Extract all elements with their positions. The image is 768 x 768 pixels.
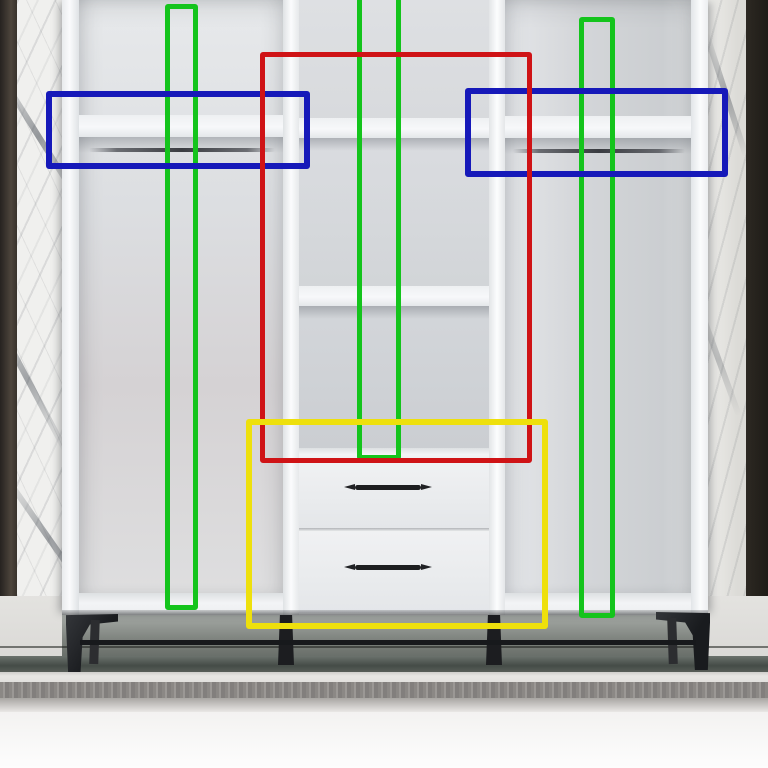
top-drawer-handle <box>355 485 421 490</box>
wardrobe-cabinet <box>62 0 708 615</box>
middle-bottom-board <box>299 448 489 462</box>
foreground-blur <box>0 712 768 768</box>
top-drawer <box>299 462 489 528</box>
cabinet-side-right <box>691 0 708 615</box>
carpet-runner <box>0 682 768 698</box>
cabinet-bottom-edge <box>62 610 708 615</box>
bottom-drawer-handle <box>355 565 421 570</box>
partition-left <box>283 0 299 615</box>
middle-shelf-upper-shadow <box>299 138 489 151</box>
tile-edge-band <box>0 672 768 682</box>
right-compartment-back <box>505 0 691 593</box>
cabinet-side-left <box>62 0 79 615</box>
floor-reflection-band <box>0 656 768 672</box>
right-shelf <box>505 116 691 138</box>
middle-shelf-upper <box>299 118 489 138</box>
marble-vein <box>704 32 746 157</box>
wall-trim-right <box>746 0 768 596</box>
wall-trim-left <box>0 0 17 596</box>
left-shelf <box>79 115 283 137</box>
bottom-drawer <box>299 532 489 613</box>
right-hanging-rail <box>513 149 685 153</box>
middle-shelf-lower-shadow <box>299 306 489 319</box>
left-compartment-back <box>79 0 283 593</box>
partition-right <box>489 0 505 615</box>
left-hanging-rail <box>89 148 275 152</box>
marble-panel-right <box>704 0 746 596</box>
floor-groove-line <box>0 646 768 648</box>
carpet-fade <box>0 698 768 712</box>
middle-shelf-lower <box>299 286 489 306</box>
middle-cubby-center <box>299 138 489 286</box>
annotated-wardrobe-photo <box>0 0 768 768</box>
middle-cubby-bottom <box>299 306 489 448</box>
leg-stretcher-bar <box>80 640 696 645</box>
middle-cubby-top <box>299 0 489 118</box>
marble-vein <box>704 302 742 417</box>
